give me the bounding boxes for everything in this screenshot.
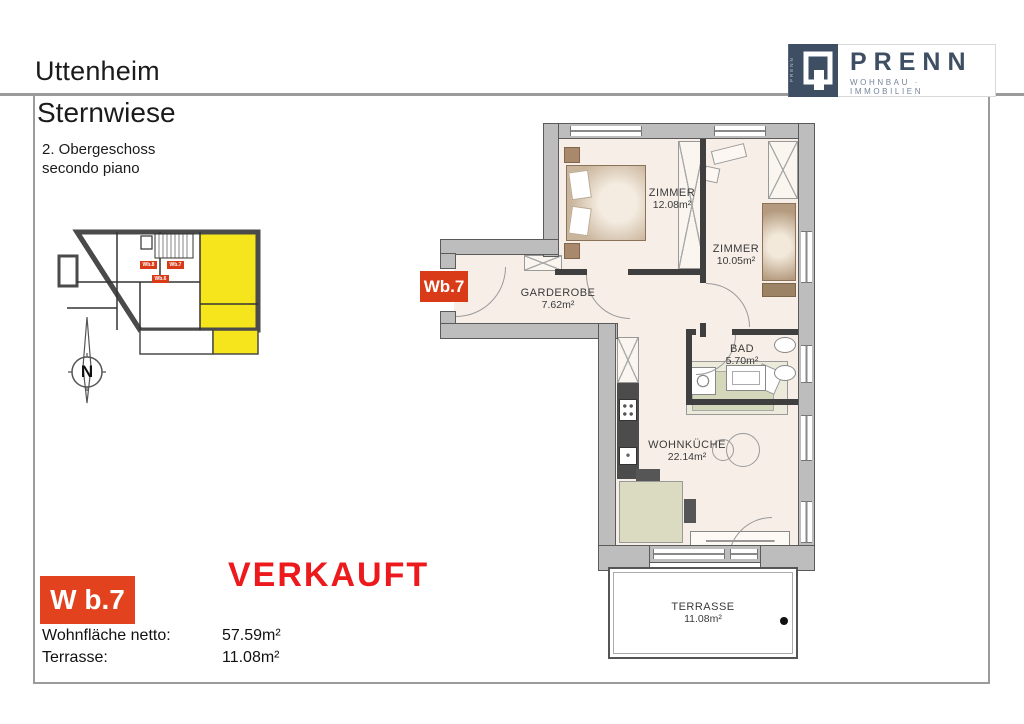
sold-status: VERKAUFT [228, 556, 429, 595]
room-label-bath: BAD5.70m² [726, 343, 759, 367]
kitchen-sink [619, 447, 637, 465]
overview-unit-tag-wb6: Wb.6 [152, 275, 169, 283]
page-subtitle: Sternwiese [37, 97, 176, 129]
floor-label-german: 2. Obergeschoss [42, 141, 155, 158]
window [570, 126, 642, 136]
compass-north-letter: N [77, 362, 97, 382]
net-area-label: Wohnfläche netto: [42, 627, 171, 645]
nightstand [564, 243, 580, 259]
terrace-area-label: Terrasse: [42, 649, 108, 667]
main-floorplan: ZIMMER12.08m² ZIMMER10.05m² GARDEROBE7.6… [440, 115, 835, 673]
chair [636, 469, 660, 481]
window [801, 231, 812, 283]
unit-tag-wb7: Wb.7 [420, 271, 468, 302]
entry-wall [440, 253, 456, 269]
exterior-wall-west-lower [598, 323, 616, 561]
exterior-wall-west-upper [543, 123, 559, 257]
room-label-terrace: TERRASSE11.08m² [671, 601, 734, 625]
bed-single [762, 203, 796, 281]
window [714, 126, 766, 136]
room-label-bedroom1: ZIMMER12.08m² [649, 187, 695, 211]
interior-wall [628, 269, 706, 275]
unit-number-badge: W b.7 [40, 576, 135, 624]
tall-cabinet [617, 337, 639, 383]
prenn-p-icon [799, 44, 838, 97]
window [801, 415, 812, 461]
hall-wall-south [440, 323, 618, 339]
shelf [762, 283, 796, 297]
interior-wall [686, 399, 800, 405]
hall-wall-north [440, 239, 559, 255]
pillow [568, 206, 592, 237]
logo-text-block: PRENN WOHNBAU · IMMOBILIEN [838, 44, 996, 97]
terrace-area-value: 11.08m² [222, 649, 280, 667]
net-area-value: 57.59m² [222, 627, 281, 645]
chair [684, 499, 696, 523]
room-label-hall: GARDEROBE7.62m² [521, 287, 596, 311]
terrace-window [653, 549, 725, 559]
interior-wall [700, 323, 706, 337]
prenn-logo-mark: PRENN [788, 44, 838, 97]
pillow [568, 170, 592, 201]
exterior-wall-east [798, 123, 815, 561]
logo-name: PRENN [850, 49, 995, 76]
logo-tagline: WOHNBAU · IMMOBILIEN [850, 78, 995, 96]
company-logo: PRENN PRENN WOHNBAU · IMMOBILIEN [788, 44, 996, 97]
logo-vertical-text: PRENN [788, 44, 799, 97]
north-compass [50, 315, 125, 405]
toilet [774, 337, 796, 353]
interior-wall [732, 329, 800, 335]
interior-wall [555, 269, 587, 275]
bidet [774, 365, 796, 381]
overview-unit-tag-wb7: Wb.7 [167, 261, 184, 269]
bath-sink-basin [732, 371, 760, 385]
nightstand [564, 147, 580, 163]
interior-wall [700, 137, 706, 269]
dining-table [619, 481, 683, 543]
terrace-drain-dot [780, 617, 788, 625]
overview-unit-tag-wb8: Wb.8 [140, 261, 157, 269]
floor-label-italian: secondo piano [42, 160, 140, 177]
wardrobe-closet [768, 141, 798, 199]
interior-wall [686, 329, 692, 405]
stove [619, 399, 637, 421]
interior-wall [700, 269, 706, 283]
room-label-livingkitchen: WOHNKÜCHE22.14m² [648, 439, 726, 463]
window [801, 345, 812, 383]
terrace-door [730, 549, 758, 559]
compass-needle-icon [50, 315, 125, 405]
page-title: Uttenheim [35, 56, 160, 87]
window [801, 501, 812, 543]
room-label-bedroom2: ZIMMER10.05m² [713, 243, 759, 267]
